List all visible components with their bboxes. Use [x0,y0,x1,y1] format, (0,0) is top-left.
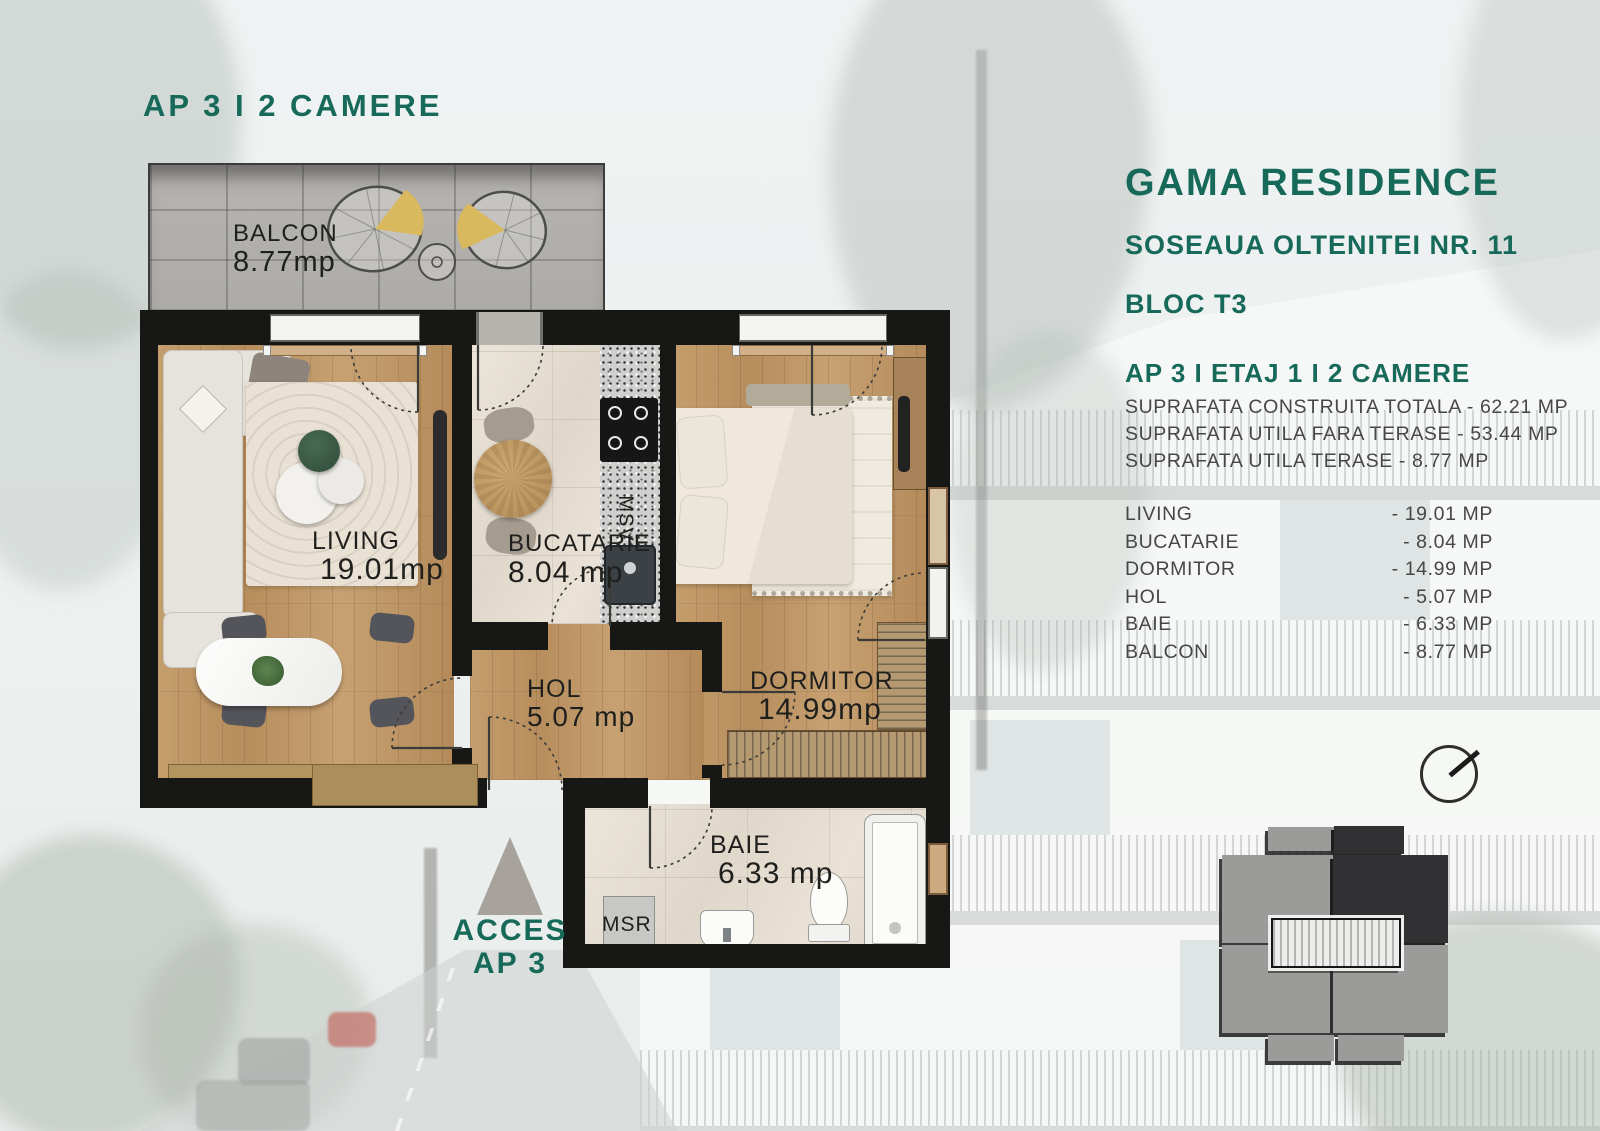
faucet [723,928,731,942]
wall-living-kitchen [452,310,472,676]
wall-bath-bottom [563,944,950,968]
access-arrow [477,837,543,915]
unit-title: AP 3 I ETAJ 1 I 2 CAMERE [1125,358,1470,389]
label-living: LIVING 19.01mp [312,528,444,585]
project-address: SOSEAUA OLTENITEI NR. 11 [1125,230,1518,261]
window-bathroom [928,843,948,895]
project-block: BLOC T3 [1125,289,1248,320]
stair-core [1271,918,1401,968]
wall-bottom-bedroom [710,778,950,808]
compass-icon [1420,745,1478,803]
wall-left [140,310,158,808]
room-row: BUCATARIE- 8.04 MP [1125,531,1493,559]
area-summary: SUPRAFATA CONSTRUITA TOTALA - 62.21 MP S… [1125,394,1568,475]
wardrobe [727,730,928,778]
toilet-tank [808,924,850,942]
bathtub-drain [889,922,901,934]
room-row: DORMITOR- 14.99 MP [1125,558,1493,586]
label-dishwasher-msv: MSV [615,495,636,521]
window-sill [264,345,426,356]
coffee-table-green [298,430,340,472]
room-row: LIVING- 19.01 MP [1125,503,1493,531]
sideboard [312,764,478,806]
dining-chair [369,612,416,644]
bed-bench [746,384,850,406]
page-title: AP 3 I 2 CAMERE [143,88,442,124]
room-row: BAIE- 6.33 MP [1125,613,1493,641]
label-hol: HOL 5.07 mp [527,676,635,731]
balcony-door-opening [476,312,543,345]
wall-kitchen-hall [470,622,548,650]
dining-chair [369,696,416,728]
window-bedroom [739,314,887,342]
kitchen-table [474,440,552,518]
area-line: SUPRAFATA UTILA FARA TERASE - 53.44 MP [1125,421,1568,448]
table-plant [252,656,284,686]
wall-hall-bedroom [702,648,722,692]
room-row: HOL- 5.07 MP [1125,586,1493,614]
room-row: BALCON- 8.77 MP [1125,641,1493,669]
pillow [676,414,729,489]
site-key-plan [1200,815,1460,1073]
window-bedroom-side [928,487,948,565]
window-bedroom-side [928,567,948,639]
wall-kitchen-bedroom [660,310,676,650]
label-washer-msr: MSR [602,914,652,936]
room-area-table: LIVING- 19.01 MP BUCATARIE- 8.04 MP DORM… [1125,503,1493,668]
project-name: GAMA RESIDENCE [1125,162,1500,205]
area-line: SUPRAFATA CONSTRUITA TOTALA - 62.21 MP [1125,394,1568,421]
compass-needle [1448,750,1480,778]
window-sill [733,345,893,356]
window-living [270,314,420,342]
label-dormitor: DORMITOR 14.99mp [750,668,894,725]
label-balcon: BALCON 8.77mp [233,222,338,277]
floor-plan-page: AP 3 I 2 CAMERE [0,0,1600,1131]
tv-bedroom [898,396,910,472]
label-baie: BAIE 6.33 mp [710,832,833,889]
balcony-floor [148,163,605,313]
area-line: SUPRAFATA UTILA TERASE - 8.77 MP [1125,448,1568,475]
access-label: ACCES AP 3 [428,914,592,980]
pillow [675,494,729,570]
